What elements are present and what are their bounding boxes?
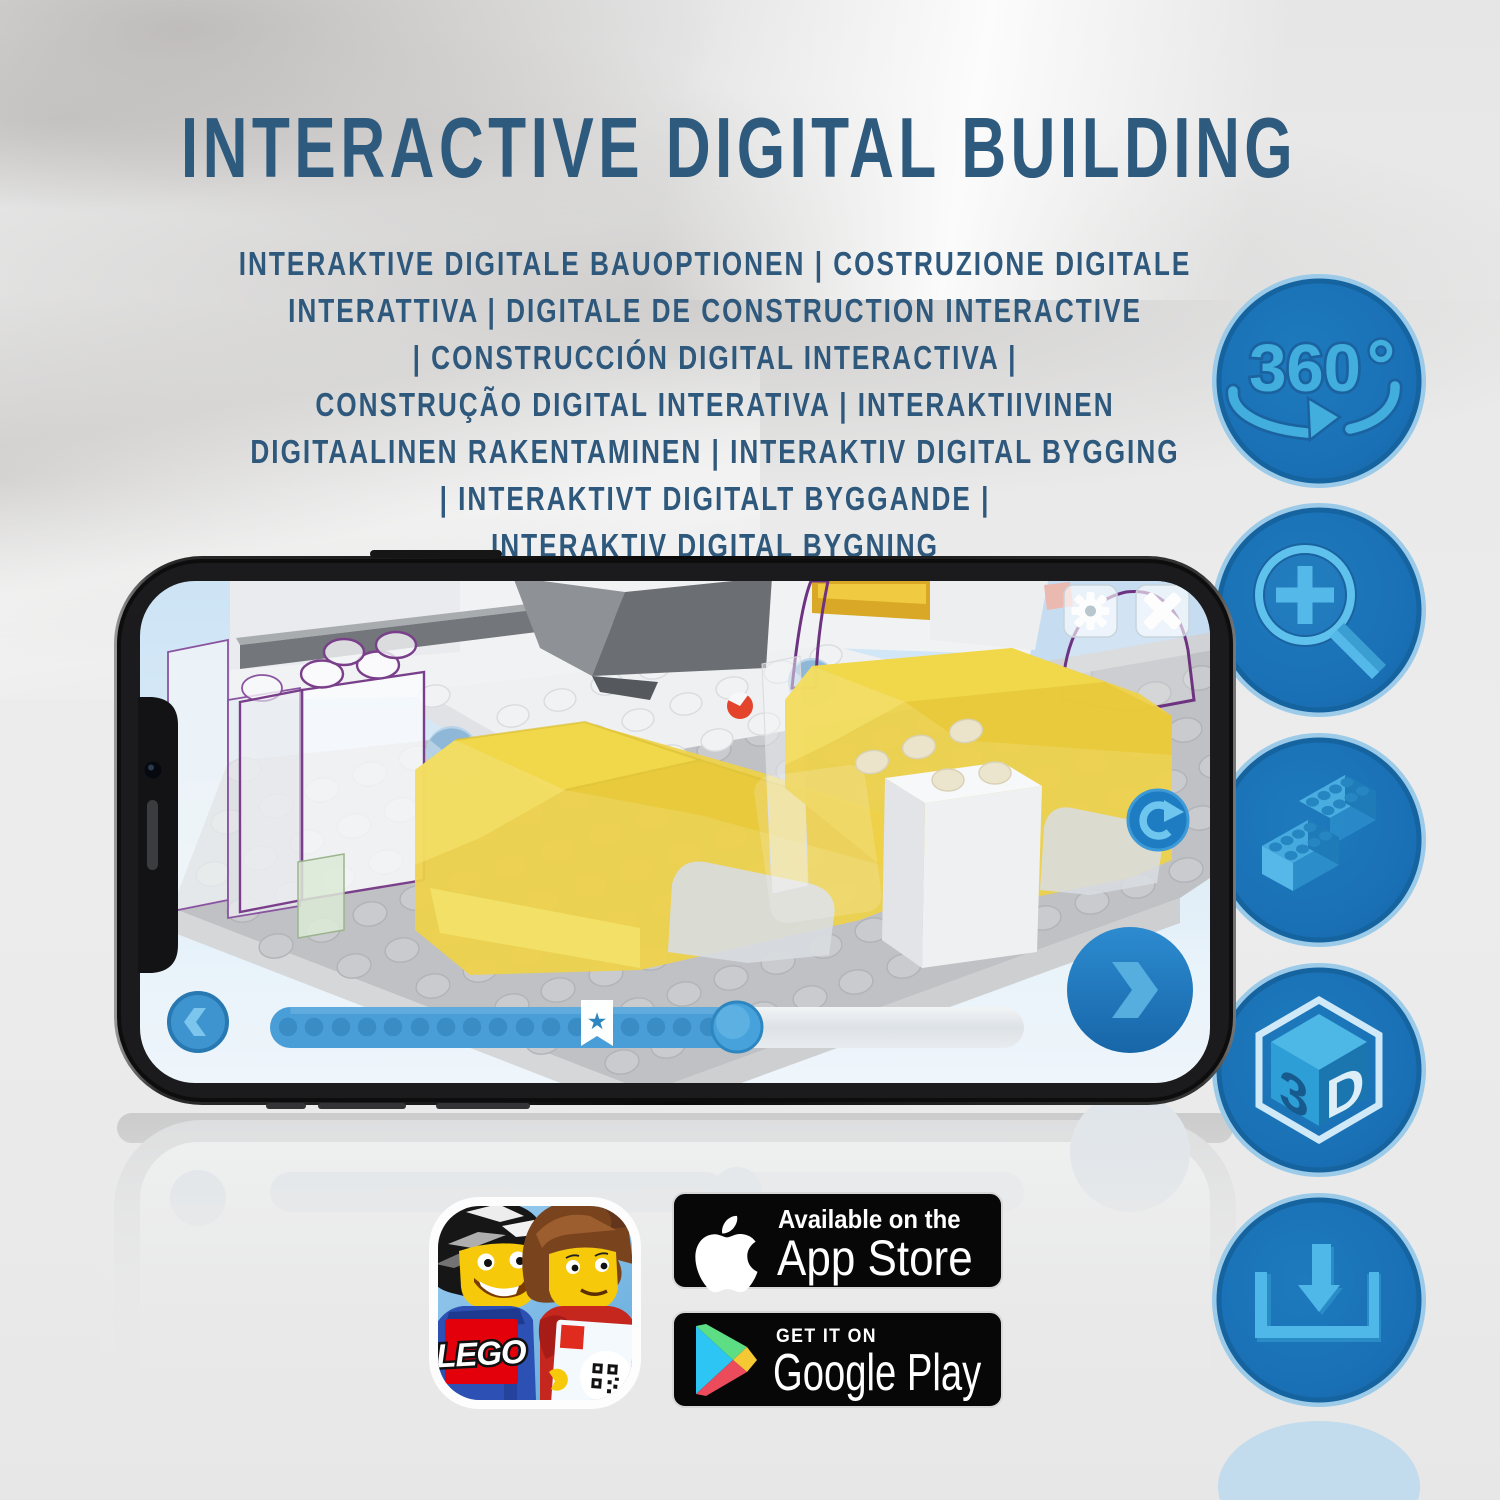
svg-text:360: 360: [1249, 331, 1361, 406]
svg-text:★: ★: [587, 1008, 608, 1034]
svg-text:LEGO: LEGO: [435, 1333, 528, 1375]
